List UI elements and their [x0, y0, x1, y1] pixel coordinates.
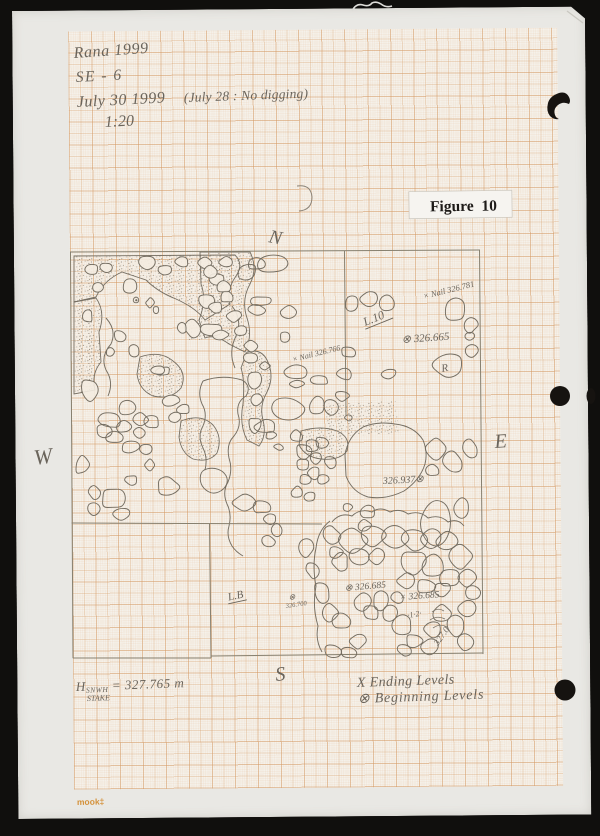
svg-text:July 30 1999: July 30 1999: [76, 89, 165, 111]
svg-text:⊗ 326.685: ⊗ 326.685: [344, 580, 386, 594]
svg-text:W: W: [32, 442, 55, 470]
svg-text:× Nail 326.766: × Nail 326.766: [291, 343, 341, 364]
svg-text:326.937⊗: 326.937⊗: [382, 474, 425, 487]
svg-text:× Nail 326.781: × Nail 326.781: [422, 279, 475, 301]
svg-text:Rana 1999: Rana 1999: [72, 40, 149, 62]
svg-text:1:20: 1:20: [104, 112, 134, 131]
svg-text:S: S: [274, 663, 286, 686]
svg-text:Figure 10: Figure 10: [430, 197, 497, 215]
svg-text:326.700: 326.700: [284, 600, 308, 610]
svg-text:·1·2·: ·1·2·: [407, 609, 422, 620]
svg-text:HSNWH = 327.765 m: HSNWH = 327.765 m: [75, 675, 185, 695]
svg-text:L.B: L.B: [226, 589, 245, 604]
svg-text:R: R: [439, 362, 449, 375]
svg-text:⊗ 326.665: ⊗ 326.665: [401, 331, 450, 346]
svg-text:E: E: [493, 430, 508, 453]
svg-text:mook‡: mook‡: [77, 797, 105, 807]
svg-text:STAKE: STAKE: [87, 693, 110, 703]
svg-text:⊗ Beginning Levels: ⊗ Beginning Levels: [358, 688, 485, 707]
svg-text:⊗: ⊗: [288, 592, 296, 602]
svg-text:N: N: [266, 226, 285, 250]
svg-text:× 326.685: × 326.685: [400, 590, 441, 603]
svg-text:(July 28 : No digging): (July 28 : No digging): [184, 86, 309, 105]
svg-text:SE - 6: SE - 6: [75, 67, 123, 86]
svg-text:327.0: 327.0: [431, 624, 452, 648]
